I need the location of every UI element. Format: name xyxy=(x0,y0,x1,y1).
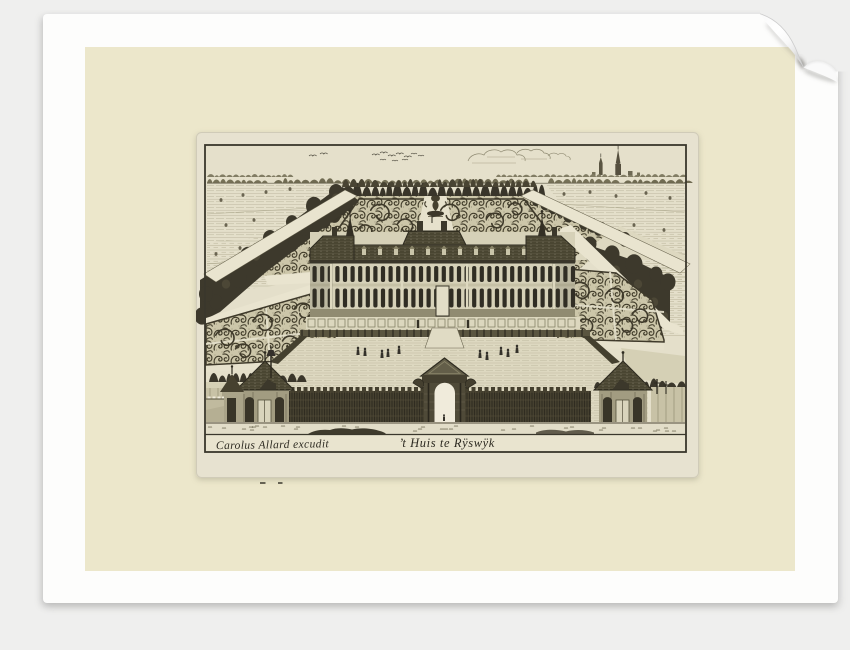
svg-text:’t Huis te Rÿswÿk: ’t Huis te Rÿswÿk xyxy=(399,436,495,450)
svg-text:Carolus Allard excudit: Carolus Allard excudit xyxy=(216,438,330,452)
